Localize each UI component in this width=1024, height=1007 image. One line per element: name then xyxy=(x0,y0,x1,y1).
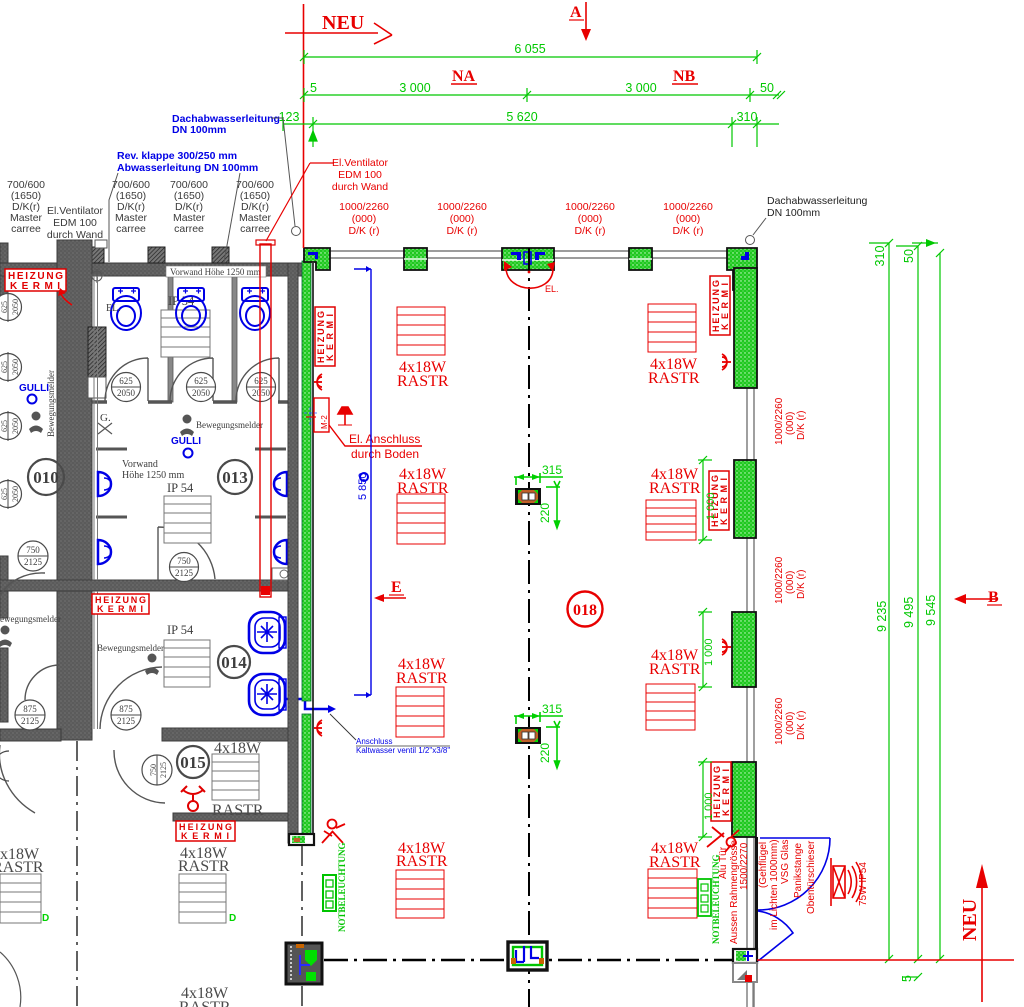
svg-text:D/K (r): D/K (r) xyxy=(796,711,807,740)
svg-text:RASTR: RASTR xyxy=(396,670,448,687)
svg-text:Obentürschieser: Obentürschieser xyxy=(806,840,817,914)
svg-text:750: 750 xyxy=(26,545,40,555)
svg-text:durch Wand: durch Wand xyxy=(332,181,388,193)
svg-text:RASTR: RASTR xyxy=(648,370,700,387)
svg-text:EDM 100: EDM 100 xyxy=(338,169,382,181)
svg-text:RASTR: RASTR xyxy=(397,373,449,390)
svg-text:50: 50 xyxy=(902,249,916,263)
svg-text:2125: 2125 xyxy=(175,568,194,578)
svg-text:625: 625 xyxy=(0,361,9,373)
svg-text:DN 100mm: DN 100mm xyxy=(172,124,226,136)
svg-text:EDM 100: EDM 100 xyxy=(53,217,97,229)
svg-text:M-2: M-2 xyxy=(320,415,329,429)
svg-text:625: 625 xyxy=(254,376,268,386)
svg-text:010: 010 xyxy=(33,468,59,487)
svg-text:014: 014 xyxy=(221,653,247,672)
svg-text:Bewegungsmelder: Bewegungsmelder xyxy=(196,420,263,430)
svg-text:(000): (000) xyxy=(352,213,377,225)
svg-text:1500/2270: 1500/2270 xyxy=(739,842,750,890)
svg-text:RASTR: RASTR xyxy=(178,858,230,875)
svg-text:1 000: 1 000 xyxy=(703,638,715,666)
svg-text:Vorwand: Vorwand xyxy=(122,459,158,470)
svg-text:RASTR: RASTR xyxy=(649,480,701,497)
svg-text:Rev. klappe 300/250 mm: Rev. klappe 300/250 mm xyxy=(117,150,237,162)
svg-text:carree: carree xyxy=(116,223,146,235)
svg-text:9 235: 9 235 xyxy=(875,601,889,632)
svg-text:2125: 2125 xyxy=(21,716,40,726)
svg-text:Dachabwasserleitung: Dachabwasserleitung xyxy=(767,195,868,207)
svg-text:IP 54: IP 54 xyxy=(167,623,194,637)
svg-text:1 000: 1 000 xyxy=(705,492,717,520)
svg-text:D/K (r): D/K (r) xyxy=(447,225,478,237)
svg-text:310: 310 xyxy=(737,110,758,124)
svg-text:durch Wand: durch Wand xyxy=(47,229,103,241)
svg-text:315: 315 xyxy=(542,702,562,716)
svg-text:El.Ventilator: El.Ventilator xyxy=(332,157,389,169)
svg-text:625: 625 xyxy=(0,420,9,432)
svg-text:IP 54: IP 54 xyxy=(167,481,194,495)
svg-text:2125: 2125 xyxy=(117,716,136,726)
svg-text:1000/2260: 1000/2260 xyxy=(663,201,713,213)
svg-text:Kaltwasser ventil 1/2"x3/8": Kaltwasser ventil 1/2"x3/8" xyxy=(356,746,450,755)
svg-text:El. Anschluss: El. Anschluss xyxy=(349,432,420,446)
svg-text:(000): (000) xyxy=(785,412,796,435)
svg-text:GULLI: GULLI xyxy=(19,383,49,394)
svg-text:B: B xyxy=(988,589,999,606)
svg-text:Bewegungsmelder: Bewegungsmelder xyxy=(0,614,61,624)
svg-text:018: 018 xyxy=(573,602,597,619)
svg-text:2050: 2050 xyxy=(192,388,211,398)
svg-text:D/K (r): D/K (r) xyxy=(673,225,704,237)
svg-text:220: 220 xyxy=(538,503,552,523)
svg-text:1000/2260: 1000/2260 xyxy=(565,201,615,213)
svg-text:NEU: NEU xyxy=(322,12,364,34)
svg-text:875: 875 xyxy=(23,704,37,714)
svg-text:carree: carree xyxy=(174,223,204,235)
svg-text:50: 50 xyxy=(760,81,774,95)
svg-text:1000/2260: 1000/2260 xyxy=(774,697,785,745)
svg-text:A: A xyxy=(570,4,582,21)
svg-text:750: 750 xyxy=(177,556,191,566)
svg-text:75W IP54: 75W IP54 xyxy=(858,862,869,906)
svg-text:NOTBELEUCHTUNG: NOTBELEUCHTUNG xyxy=(337,842,347,932)
svg-text:9 495: 9 495 xyxy=(902,597,916,628)
svg-text:Höhe 1250 mm: Höhe 1250 mm xyxy=(122,470,184,481)
svg-text:2050: 2050 xyxy=(11,299,20,315)
svg-text:4x18W: 4x18W xyxy=(214,740,262,757)
svg-text:D/K (r): D/K (r) xyxy=(796,570,807,599)
svg-text:5: 5 xyxy=(310,81,317,95)
svg-text:(000): (000) xyxy=(785,571,796,594)
svg-text:750: 750 xyxy=(149,764,158,776)
svg-text:2050: 2050 xyxy=(117,388,136,398)
svg-text:E: E xyxy=(391,579,402,596)
svg-text:9 545: 9 545 xyxy=(924,595,938,626)
svg-text:3 000: 3 000 xyxy=(399,81,430,95)
svg-text:1000/2260: 1000/2260 xyxy=(774,397,785,445)
svg-text:123: 123 xyxy=(279,110,300,124)
svg-text:2125: 2125 xyxy=(24,557,43,567)
svg-text:Bewegungsmelder: Bewegungsmelder xyxy=(97,643,164,653)
svg-text:RASTR: RASTR xyxy=(649,854,701,871)
svg-text:DN 100mm: DN 100mm xyxy=(767,207,820,219)
svg-text:NA: NA xyxy=(452,68,476,85)
svg-text:EL.: EL. xyxy=(545,284,559,294)
svg-text:(000): (000) xyxy=(785,712,796,735)
svg-text:013: 013 xyxy=(222,468,248,487)
svg-text:RASTR: RASTR xyxy=(212,802,264,819)
svg-text:Bewegungsmelder: Bewegungsmelder xyxy=(46,370,56,437)
svg-text:RASTR: RASTR xyxy=(179,999,231,1007)
svg-text:1000/2260: 1000/2260 xyxy=(437,201,487,213)
svg-text:RASTR: RASTR xyxy=(649,661,701,678)
svg-text:2050: 2050 xyxy=(252,388,271,398)
svg-text:NEU: NEU xyxy=(959,899,981,941)
svg-text:625: 625 xyxy=(0,301,9,313)
svg-text:6 055: 6 055 xyxy=(514,42,545,56)
svg-text:Anschluss: Anschluss xyxy=(356,737,392,746)
svg-text:Alu Tür: Alu Tür xyxy=(718,846,729,879)
svg-text:625: 625 xyxy=(119,376,133,386)
svg-text:2050: 2050 xyxy=(11,359,20,375)
svg-text:D: D xyxy=(229,913,236,924)
svg-text:1000/2260: 1000/2260 xyxy=(339,201,389,213)
svg-text:El.Ventilator: El.Ventilator xyxy=(47,205,104,217)
svg-text:Vorwand Höhe 1250 mm: Vorwand Höhe 1250 mm xyxy=(170,267,261,277)
svg-text:5 620: 5 620 xyxy=(506,110,537,124)
svg-text:Abwasserleitung DN 100mm: Abwasserleitung DN 100mm xyxy=(117,162,258,174)
svg-text:(000): (000) xyxy=(578,213,603,225)
svg-text:durch Boden: durch Boden xyxy=(351,447,419,461)
svg-text:im Lichten 1000mm): im Lichten 1000mm) xyxy=(769,839,780,930)
svg-text:(Gehflügel: (Gehflügel xyxy=(758,842,769,888)
svg-text:(000): (000) xyxy=(676,213,701,225)
svg-text:VSG Glas: VSG Glas xyxy=(780,840,791,884)
svg-text:875: 875 xyxy=(119,704,133,714)
svg-text:1000/2260: 1000/2260 xyxy=(774,556,785,604)
svg-text:carree: carree xyxy=(240,223,270,235)
svg-text:3 000: 3 000 xyxy=(625,81,656,95)
svg-text:EL.: EL. xyxy=(106,303,121,314)
svg-text:D/K (r): D/K (r) xyxy=(349,225,380,237)
svg-text:Panikstange: Panikstange xyxy=(793,843,804,898)
svg-text:RASTR: RASTR xyxy=(396,853,448,870)
svg-text:GULLI: GULLI xyxy=(171,436,201,447)
svg-text:015: 015 xyxy=(180,753,206,772)
svg-text:2050: 2050 xyxy=(11,486,20,502)
svg-text:5: 5 xyxy=(900,975,914,982)
svg-text:310: 310 xyxy=(873,246,887,267)
svg-text:G.: G. xyxy=(100,412,111,424)
svg-text:2125: 2125 xyxy=(159,762,168,778)
svg-text:D: D xyxy=(42,913,49,924)
svg-text:D/K (r): D/K (r) xyxy=(796,411,807,440)
svg-text:220: 220 xyxy=(538,743,552,763)
svg-text:RASTR: RASTR xyxy=(397,480,449,497)
svg-text:D/K (r): D/K (r) xyxy=(575,225,606,237)
svg-text:1 000: 1 000 xyxy=(703,792,715,820)
svg-text:RASTR: RASTR xyxy=(0,859,44,876)
svg-text:2050: 2050 xyxy=(11,418,20,434)
svg-text:315: 315 xyxy=(542,463,562,477)
svg-text:5 850: 5 850 xyxy=(357,472,369,500)
svg-text:NB: NB xyxy=(673,68,696,85)
svg-text:625: 625 xyxy=(0,488,9,500)
svg-text:carree: carree xyxy=(11,223,41,235)
svg-text:625: 625 xyxy=(194,376,208,386)
svg-text:(000): (000) xyxy=(450,213,475,225)
